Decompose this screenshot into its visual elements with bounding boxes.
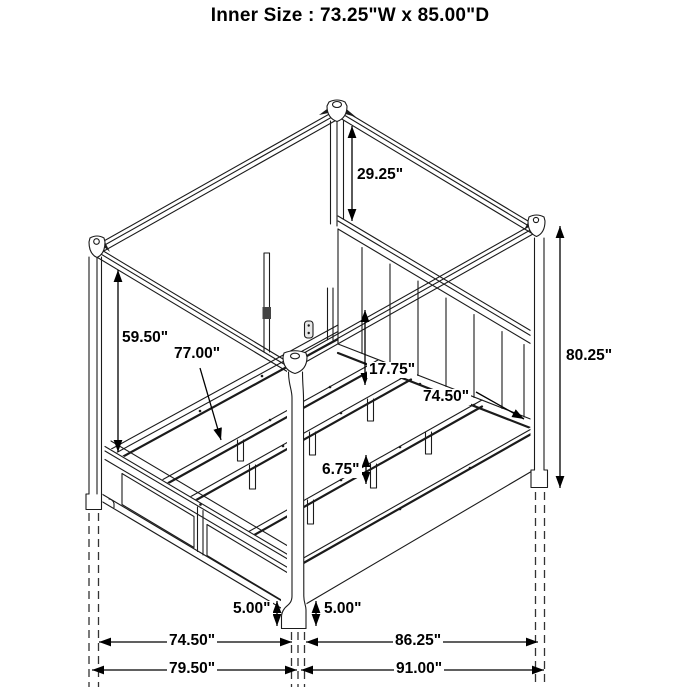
dim-label-inner-rail-width: 74.50" — [421, 389, 471, 405]
dim-label-footboard-to-canopy: 59.50" — [120, 330, 170, 346]
canopy-corner-right — [524, 215, 545, 237]
dim-label-overall-depth: 91.00" — [394, 661, 444, 677]
headboard-bracket — [305, 321, 314, 338]
dim-label-support-leg-height: 6.75" — [320, 462, 362, 478]
dim-label-siderail-span: 86.25" — [393, 633, 443, 649]
footboard — [96, 441, 302, 622]
side-rail — [300, 426, 533, 611]
dim-label-canopy-to-headboard: 29.25" — [355, 167, 405, 183]
dim-label-footboard-span: 74.50" — [167, 633, 217, 649]
right-post — [531, 234, 549, 488]
dim-label-footboard-floor-clearance: 5.00" — [231, 601, 273, 617]
dim-label-siderail-floor-clearance: 5.00" — [322, 601, 364, 617]
hidden-post-line — [263, 253, 272, 352]
dim-label-slat-rail-length: 77.00" — [172, 346, 222, 362]
page-title: Inner Size : 73.25"W x 85.00"D — [0, 5, 700, 27]
dim-label-overall-width: 79.50" — [167, 661, 217, 677]
dim-label-headboard-to-rail-gap: 17.75" — [367, 362, 417, 378]
left-post — [86, 243, 103, 510]
diagram-canvas: Inner Size : 73.25"W x 85.00"D 29.25" 59… — [0, 0, 700, 700]
dim-label-post-height: 80.25" — [564, 348, 614, 364]
